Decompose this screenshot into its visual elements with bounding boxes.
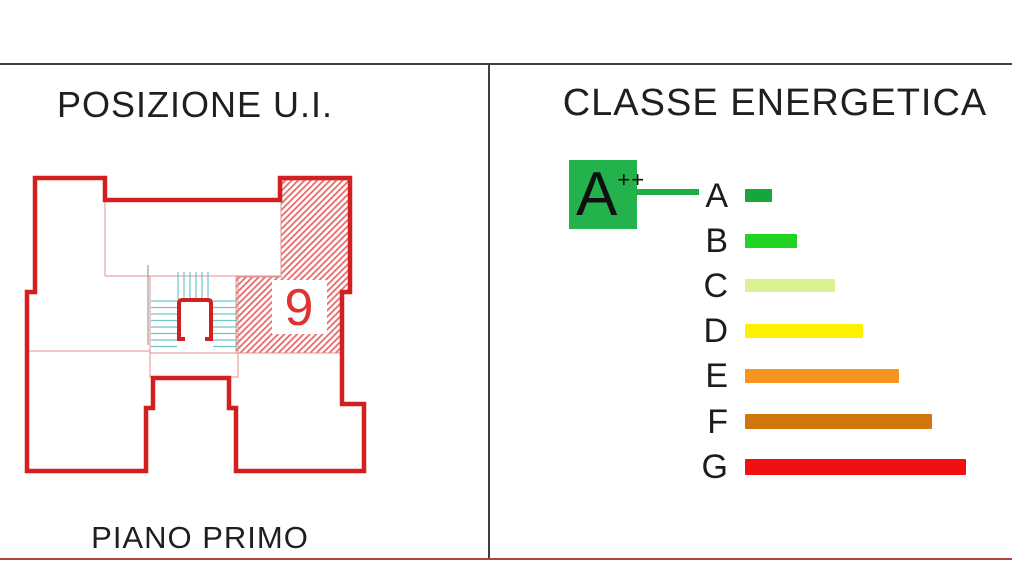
energy-class-letter: C — [690, 269, 728, 303]
energy-class-letter: G — [690, 450, 728, 484]
energy-class-letter: B — [690, 224, 728, 258]
energy-class-bar — [745, 189, 772, 202]
energy-scale: ABCDEFG — [690, 173, 1012, 489]
energy-class-row: F — [690, 399, 1012, 444]
energy-class-row: G — [690, 444, 1012, 489]
elevator-shaft — [177, 300, 213, 341]
energy-class-bar — [745, 234, 797, 248]
listing-infographic: POSIZIONE U.I. — [0, 0, 1012, 568]
energy-class-row: E — [690, 354, 1012, 399]
energy-class-bar — [745, 324, 863, 338]
energy-panel-title: CLASSE ENERGETICA — [545, 82, 1005, 125]
energy-class-letter: F — [690, 405, 728, 439]
energy-class-row: A — [690, 173, 1012, 218]
energy-class-badge: A ++ — [569, 160, 637, 229]
energy-class-row: C — [690, 263, 1012, 308]
energy-class-bar — [745, 369, 899, 383]
energy-class-bar — [745, 279, 835, 292]
energy-class-row: B — [690, 218, 1012, 263]
unit-label: 9 — [272, 279, 327, 337]
floor-label: PIANO PRIMO — [0, 520, 400, 556]
badge-superscript: ++ — [617, 169, 645, 229]
badge-letter: A — [576, 160, 617, 229]
energy-class-bar — [745, 459, 966, 475]
energy-class-letter: E — [690, 359, 728, 393]
unit-number: 9 — [285, 279, 314, 337]
energy-class-letter: A — [690, 179, 728, 213]
energy-class-row: D — [690, 309, 1012, 354]
energy-class-letter: D — [690, 314, 728, 348]
energy-class-bar — [745, 414, 932, 429]
stair-treads — [151, 272, 237, 347]
